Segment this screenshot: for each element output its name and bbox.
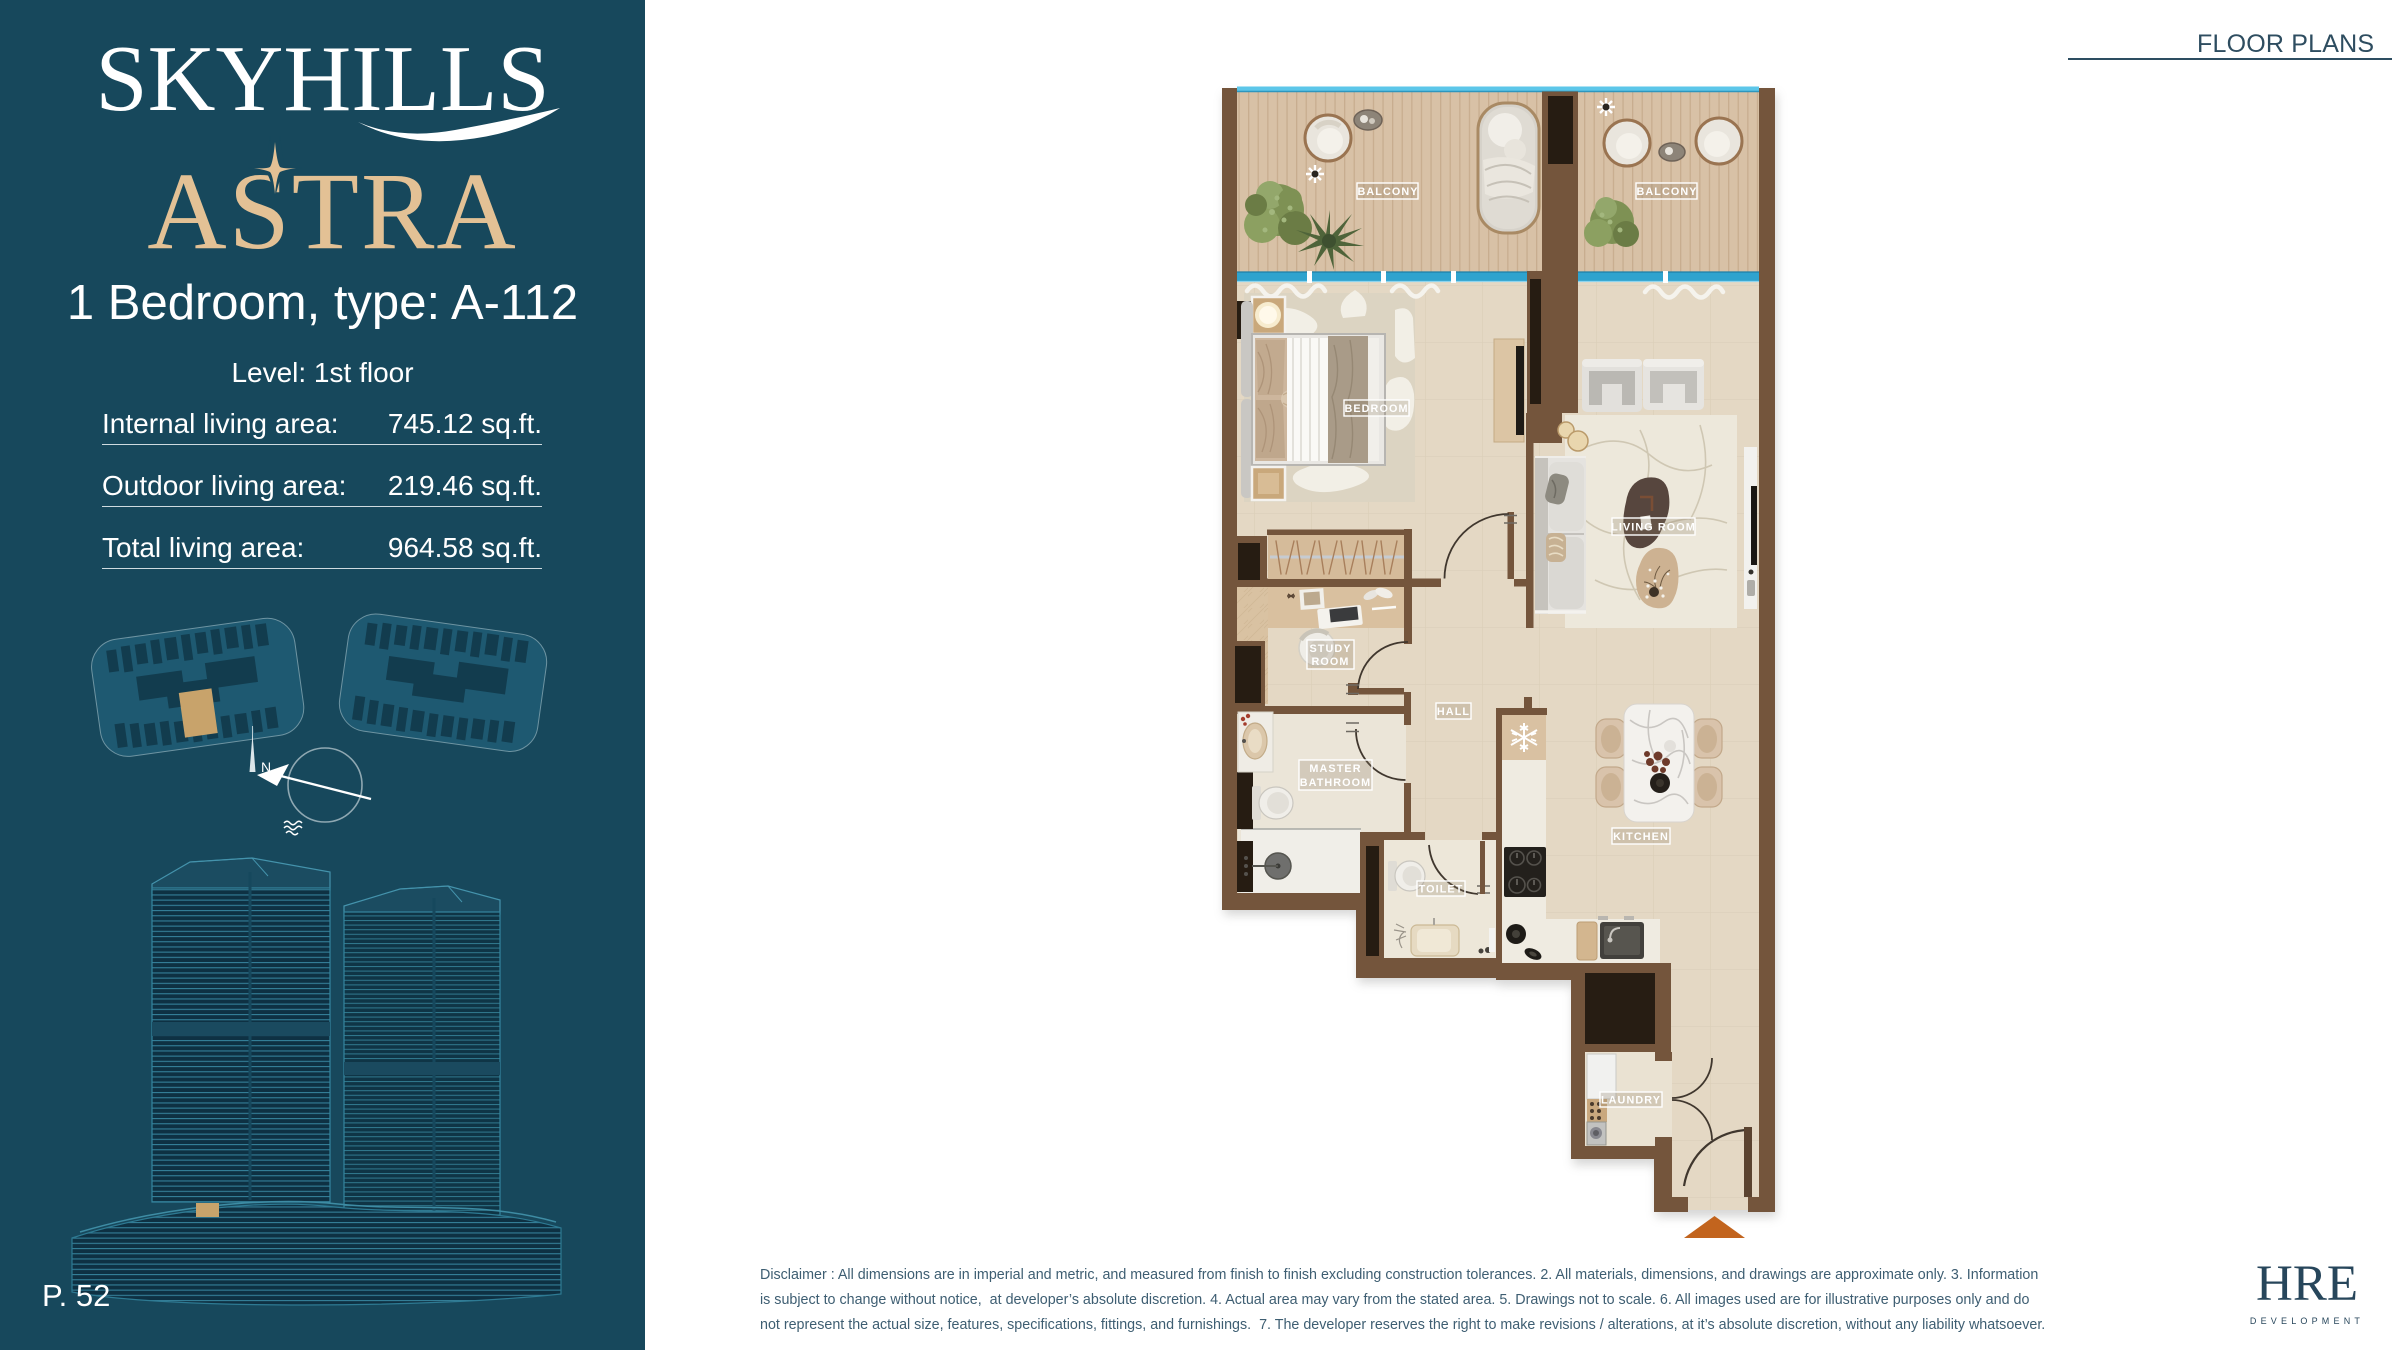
svg-text:TOILET: TOILET <box>1419 884 1464 896</box>
svg-text:N: N <box>261 759 271 775</box>
svg-text:MASTER: MASTER <box>1309 763 1361 775</box>
svg-text:HALL: HALL <box>1437 706 1470 718</box>
svg-text:KITCHEN: KITCHEN <box>1613 831 1669 843</box>
svg-text:ROOM: ROOM <box>1312 656 1350 668</box>
svg-text:LIVING ROOM: LIVING ROOM <box>1611 522 1696 534</box>
svg-text:BEDROOM: BEDROOM <box>1344 403 1408 415</box>
svg-text:BATHROOM: BATHROOM <box>1300 777 1372 789</box>
svg-text:LAUNDRY: LAUNDRY <box>1601 1095 1661 1107</box>
svg-text:BALCONY: BALCONY <box>1357 186 1418 198</box>
svg-text:BALCONY: BALCONY <box>1636 186 1697 198</box>
svg-text:STUDY: STUDY <box>1309 643 1351 655</box>
